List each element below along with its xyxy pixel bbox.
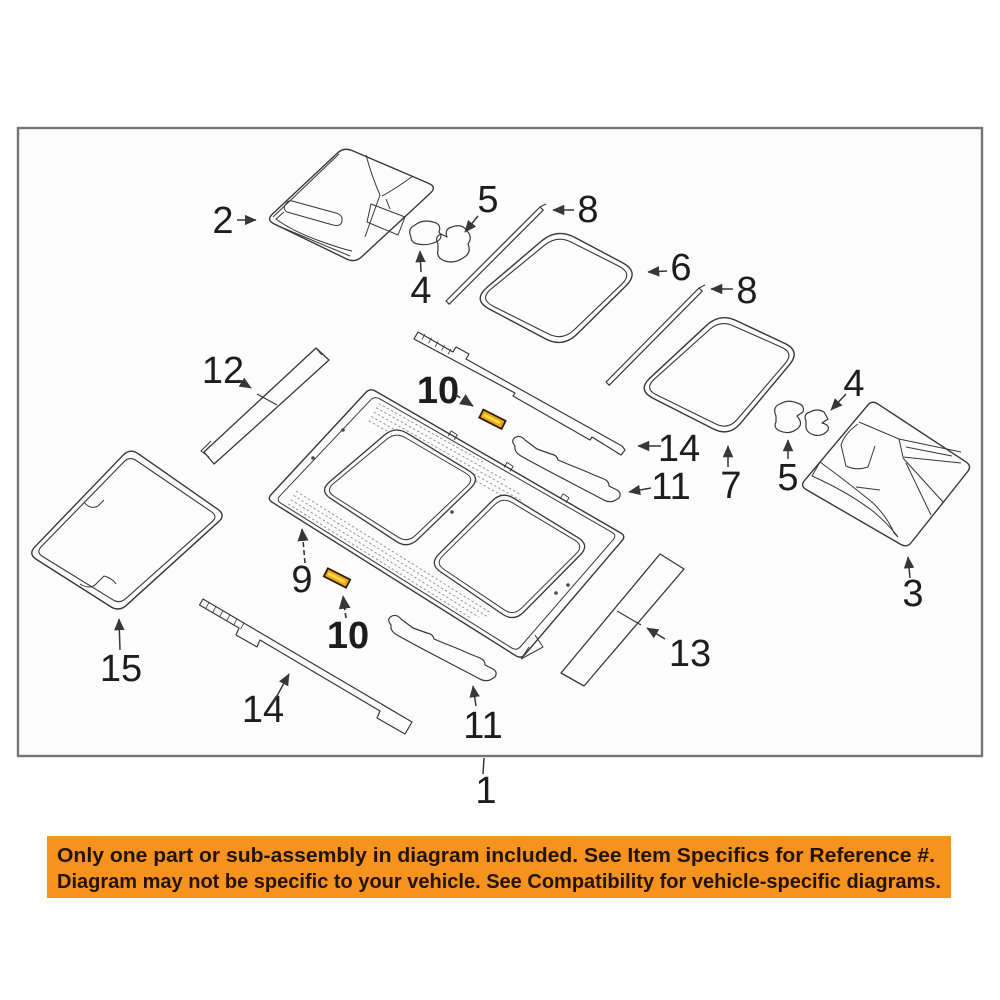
svg-text:10: 10 <box>327 615 369 657</box>
svg-text:14: 14 <box>658 428 700 470</box>
svg-text:5: 5 <box>477 179 498 221</box>
svg-text:11: 11 <box>651 466 690 508</box>
svg-text:8: 8 <box>577 189 598 231</box>
svg-text:8: 8 <box>736 270 757 312</box>
svg-text:7: 7 <box>720 465 741 507</box>
svg-text:1: 1 <box>475 770 496 812</box>
svg-text:9: 9 <box>291 559 312 601</box>
svg-text:4: 4 <box>843 363 864 405</box>
svg-text:6: 6 <box>670 247 691 289</box>
svg-text:10: 10 <box>417 370 459 412</box>
svg-text:3: 3 <box>902 573 923 615</box>
svg-text:15: 15 <box>100 648 142 690</box>
svg-text:12: 12 <box>202 350 244 392</box>
svg-text:Only one part or sub-assembly: Only one part or sub-assembly in diagram… <box>57 844 935 867</box>
svg-text:5: 5 <box>777 457 798 499</box>
svg-text:4: 4 <box>410 270 431 312</box>
svg-text:13: 13 <box>669 633 711 675</box>
svg-text:11: 11 <box>463 705 502 747</box>
svg-text:2: 2 <box>212 200 233 242</box>
svg-text:Diagram may not be specific to: Diagram may not be specific to your vehi… <box>57 870 941 893</box>
